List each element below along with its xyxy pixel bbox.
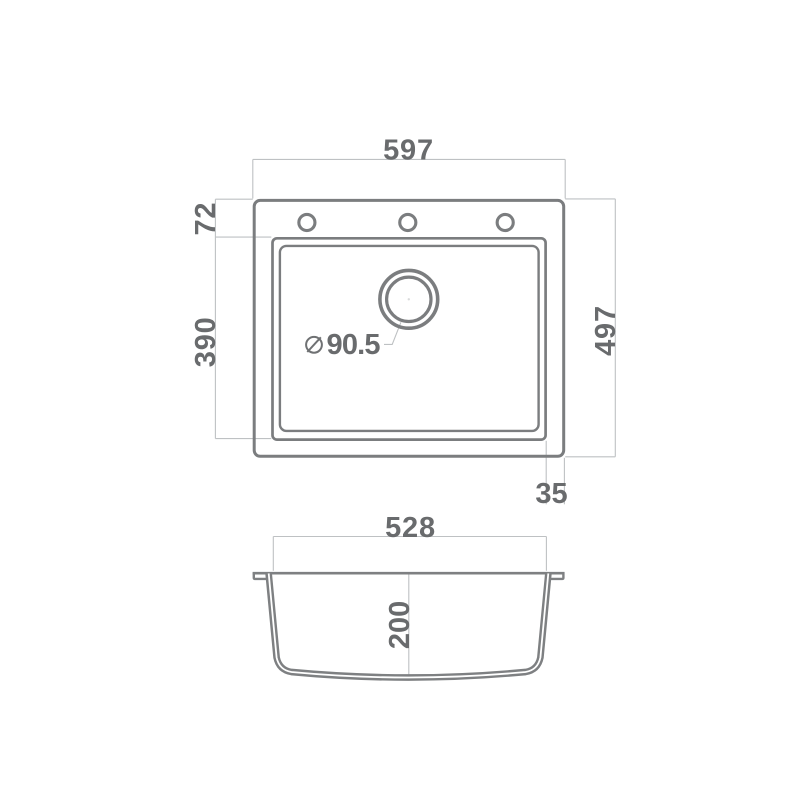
svg-text:200: 200 (384, 601, 416, 649)
svg-text:390: 390 (190, 316, 222, 367)
svg-text:597: 597 (383, 135, 434, 167)
svg-text:497: 497 (590, 305, 622, 356)
svg-text:72: 72 (190, 202, 222, 236)
svg-text:90.5: 90.5 (327, 329, 381, 361)
svg-text:528: 528 (385, 512, 436, 544)
svg-text:35: 35 (535, 478, 567, 510)
